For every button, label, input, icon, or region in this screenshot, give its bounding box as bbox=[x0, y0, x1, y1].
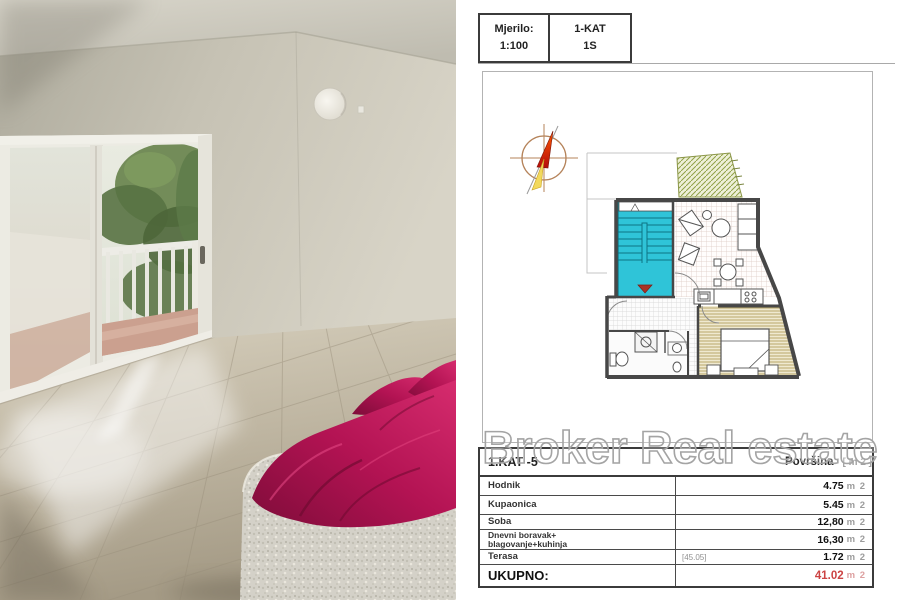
area-table: 1.KAT -5 Površina [ m 2 ] Hodnik 4.75 m … bbox=[478, 447, 874, 588]
table-row-dnevni-boravak: Dnevni boravak+ blagovanje+kuhinja 16,30… bbox=[480, 530, 872, 550]
unit-label: 1S bbox=[583, 38, 596, 55]
sheet-divider-line bbox=[478, 63, 895, 64]
table-row-kupaonica: Kupaonica 5.45 m 2 bbox=[480, 496, 872, 515]
row-unit: m 2 bbox=[847, 517, 866, 528]
title-block: Mjerilo: 1:100 1-KAT 1S bbox=[478, 13, 632, 63]
scale-label: Mjerilo: bbox=[494, 21, 533, 38]
row-value: 5.45 bbox=[823, 499, 843, 511]
floor-plan bbox=[483, 72, 872, 442]
total-value: 41.02 bbox=[815, 570, 844, 582]
area-table-header: 1.KAT -5 Površina [ m 2 ] bbox=[480, 449, 872, 477]
total-label: UKUPNO: bbox=[488, 569, 675, 583]
area-column-unit: [ m 2 ] bbox=[843, 457, 872, 468]
floor-cell: 1-KAT 1S bbox=[550, 15, 630, 61]
compass-south-arrow bbox=[532, 159, 544, 190]
row-unit: m 2 bbox=[847, 481, 866, 492]
wall-light bbox=[314, 88, 346, 120]
listing-collage: Mjerilo: 1:100 1-KAT 1S bbox=[0, 0, 900, 600]
scale-cell: Mjerilo: 1:100 bbox=[480, 15, 550, 61]
kitchen-counter bbox=[694, 289, 763, 304]
row-label-line2: blagovanje+kuhinja bbox=[488, 540, 675, 549]
row-label: Soba bbox=[488, 517, 675, 527]
plan-box bbox=[482, 71, 873, 443]
total-unit: m 2 bbox=[847, 570, 866, 581]
table-title: 1.KAT -5 bbox=[480, 455, 538, 469]
row-label: Terasa bbox=[488, 552, 675, 562]
table-row-total: UKUPNO: 41.02 m 2 bbox=[480, 565, 872, 586]
floor-label: 1-KAT bbox=[574, 21, 606, 38]
row-unit: m 2 bbox=[847, 500, 866, 511]
table-row-soba: Soba 12,80 m 2 bbox=[480, 515, 872, 530]
staircase bbox=[618, 202, 673, 297]
row-value: 12,80 bbox=[817, 516, 843, 528]
light-switch bbox=[358, 106, 364, 113]
room-photo bbox=[0, 0, 456, 600]
row-unit: m 2 bbox=[847, 534, 866, 545]
compass-rose bbox=[510, 124, 578, 194]
row-value: 1.72 bbox=[823, 551, 843, 563]
area-column-label: Površina bbox=[785, 456, 840, 468]
row-value: 4.75 bbox=[823, 480, 843, 492]
door-handle bbox=[200, 246, 205, 264]
row-label: Kupaonica bbox=[488, 500, 675, 510]
table-row-hodnik: Hodnik 4.75 m 2 bbox=[480, 477, 872, 496]
scale-value: 1:100 bbox=[500, 38, 528, 55]
balcony-terrace bbox=[677, 153, 744, 197]
row-unit: m 2 bbox=[847, 552, 866, 563]
table-row-terasa: Terasa [45.05] 1.72 m 2 bbox=[480, 550, 872, 565]
row-note: [45.05] bbox=[682, 553, 706, 562]
row-label: Hodnik bbox=[488, 481, 675, 491]
row-value: 16,30 bbox=[817, 534, 843, 546]
